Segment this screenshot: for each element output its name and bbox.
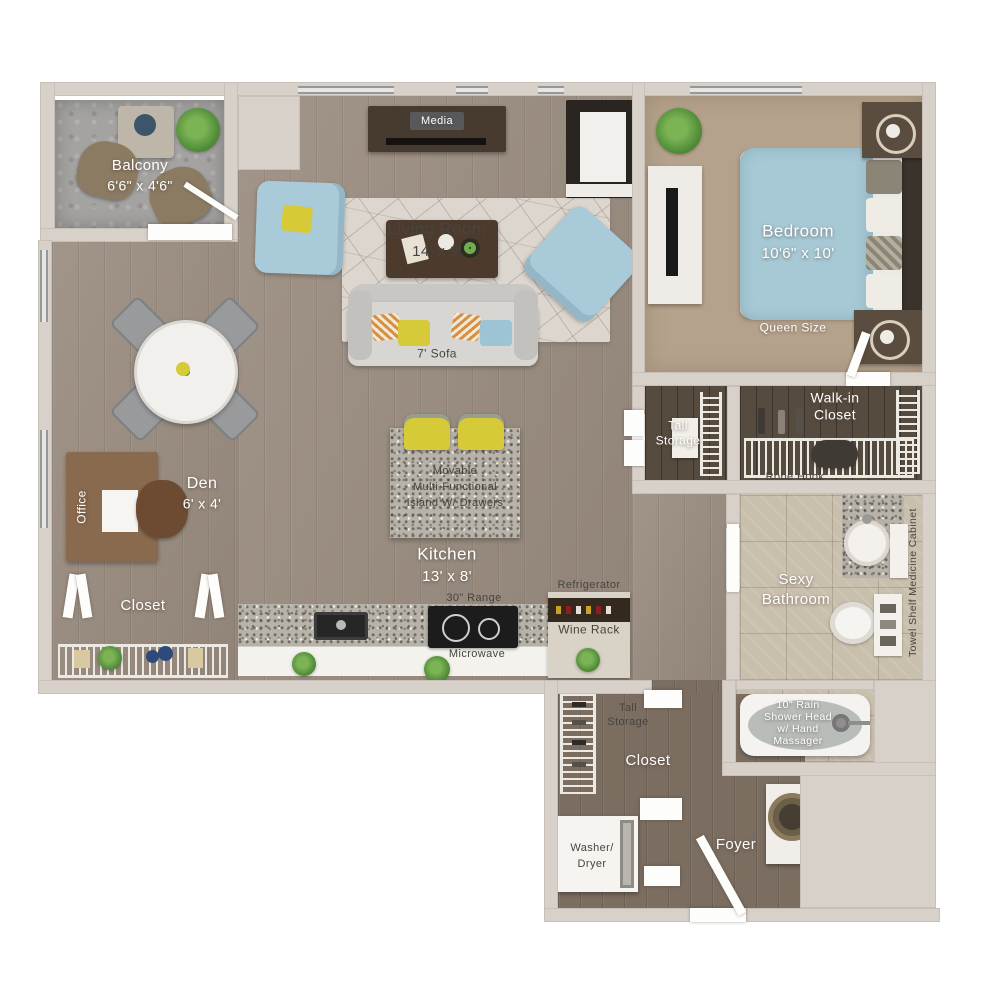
wine-bottle-3 — [576, 606, 581, 614]
wall — [726, 590, 740, 680]
towel-2 — [880, 620, 896, 629]
window — [690, 86, 802, 94]
robe-hook-label: Robe Hook — [766, 471, 825, 483]
left-closet-box-1 — [74, 650, 90, 668]
den-label: Den — [187, 475, 218, 493]
wine-bottle-4 — [586, 606, 591, 614]
bedroom-dims: 10'6" x 10' — [762, 246, 835, 263]
tub-line3: w/ Hand — [777, 724, 818, 736]
balcony-label: Balcony — [112, 158, 168, 175]
towel-shelf-label: Towel Shelf — [908, 599, 920, 657]
bed-pillow-2 — [866, 198, 902, 232]
kitchen-dims: 13' x 8' — [422, 569, 472, 586]
tub-line4: Massager — [773, 736, 822, 748]
wall — [736, 680, 874, 690]
medicine-cabinet-label: Medicine Cabinet — [908, 508, 920, 596]
den-dims: 6' x 4' — [183, 496, 222, 511]
hanging-clothes-1 — [758, 408, 765, 434]
left-closet-plant — [98, 646, 122, 670]
range-label: 30" Range — [446, 592, 501, 604]
sofa-pillow-2 — [398, 320, 430, 346]
kitchen-label: Kitchen — [417, 546, 477, 565]
bedroom-tv — [666, 188, 678, 276]
office-chair — [136, 480, 188, 538]
bottom-closet-panel-1 — [644, 690, 682, 708]
island-line3: Island W/ Drawers — [407, 497, 504, 509]
sofa-label: 7' Sofa — [417, 347, 457, 360]
bathroom-line1: Sexy — [779, 572, 814, 589]
walk-in-closet-line2: Closet — [814, 407, 856, 422]
living-room-dims: 14' x 9' — [412, 244, 462, 261]
island-line1: Movable — [433, 465, 477, 477]
window — [40, 250, 48, 322]
island-chair-2 — [458, 414, 504, 450]
bottom-closet-panel-3 — [644, 866, 680, 886]
balcony-plant — [176, 108, 220, 152]
left-closet-box-2 — [188, 648, 203, 668]
floor-plan: Balcony 6'6" x 4'6" Media Living Room 14… — [0, 0, 1000, 1000]
wall — [40, 82, 55, 242]
sofa-pillow-1 — [371, 313, 402, 342]
wine-bottle-5 — [596, 606, 601, 614]
sofa-arm-right — [514, 290, 538, 360]
wine-bottle-6 — [606, 606, 611, 614]
sofa-pillow-4 — [480, 320, 512, 346]
armchair-left-pillow — [281, 205, 314, 234]
wall — [726, 494, 740, 528]
tall-storage-upper-line2: Storage — [656, 434, 701, 447]
hallway-floor — [632, 494, 726, 680]
refrigerator-label: Refrigerator — [558, 579, 621, 591]
coffee-table-bowl — [460, 238, 480, 258]
towel-3 — [880, 636, 896, 646]
wall — [874, 680, 936, 766]
medicine-cabinet-shelf — [890, 524, 908, 578]
wall — [632, 82, 645, 386]
island-line2: Multi-Functional — [413, 481, 497, 493]
bottom-clothes-1 — [572, 702, 586, 707]
closet-bottom-label: Closet — [626, 753, 671, 770]
nightstand-bottom-lamp-core — [880, 330, 894, 344]
tub-faucet-arm — [848, 721, 870, 725]
window — [40, 430, 48, 528]
nightstand-top-lamp-core — [886, 124, 900, 138]
range-burner-1 — [442, 614, 470, 642]
wine-bottle-2 — [566, 606, 571, 614]
tub-line2: Shower Head — [764, 712, 832, 724]
toilet-bowl — [830, 602, 876, 644]
living-room-label: Living Room — [388, 221, 487, 240]
range-burner-2 — [478, 618, 500, 640]
bottom-closet-basket — [566, 736, 600, 766]
wine-bottle-1 — [556, 606, 561, 614]
sink-faucet — [862, 514, 872, 524]
wall — [632, 372, 936, 386]
microwave-label: Microwave — [449, 648, 505, 660]
window — [298, 86, 394, 94]
office-paper — [102, 490, 138, 532]
kitchen-sink-faucet — [336, 620, 346, 630]
closet-left-label: Closet — [121, 598, 166, 615]
hanging-clothes-3 — [796, 408, 803, 434]
bed-pillow-1 — [866, 160, 902, 194]
bathroom-door-leaf — [727, 524, 739, 592]
washer-line2: Dryer — [578, 858, 607, 870]
bathroom-line2: Bathroom — [762, 592, 830, 609]
bedroom-label: Bedroom — [762, 223, 834, 242]
media-label: Media — [421, 115, 453, 127]
bottom-closet-panel-2 — [640, 798, 682, 820]
walk-in-side-shelf — [896, 390, 920, 474]
wall — [722, 680, 736, 766]
washer-line1: Washer/ — [570, 842, 613, 854]
left-closet-vase-2 — [158, 646, 173, 661]
hanging-clothes-2 — [778, 410, 785, 434]
wall — [238, 96, 300, 170]
wall — [922, 82, 936, 694]
window — [538, 86, 564, 94]
balcony-dims: 6'6" x 4'6" — [107, 178, 173, 193]
window — [456, 86, 488, 94]
washer-dryer-door — [620, 820, 634, 888]
wall — [38, 680, 652, 694]
wall — [722, 762, 936, 776]
counter-plant-3 — [576, 648, 600, 672]
wine-rack-label: Wine Rack — [558, 623, 620, 636]
island-chair-1 — [404, 414, 450, 450]
queen-size-label: Queen Size — [760, 321, 827, 334]
tv-bar — [386, 138, 486, 145]
bed-pillow-3 — [866, 236, 902, 270]
tall-storage-door-2 — [624, 440, 644, 466]
duffel-bag — [812, 440, 858, 468]
wall — [800, 762, 936, 908]
counter-plant-2 — [424, 656, 450, 682]
window-desk-top — [580, 112, 626, 182]
bed-headboard — [900, 148, 924, 320]
walk-in-closet-line1: Walk-in — [811, 390, 860, 405]
bathroom-sink — [844, 520, 890, 566]
bedroom-plant — [656, 108, 702, 154]
balcony-firebowl — [134, 114, 156, 136]
foyer-label: Foyer — [716, 837, 756, 854]
bed-pillow-4 — [866, 274, 902, 308]
bottom-clothes-2 — [572, 720, 586, 725]
sofa-arm-left — [348, 290, 372, 360]
counter-plant-1 — [292, 652, 316, 676]
dining-table-flowers — [176, 362, 190, 376]
window-bench — [566, 184, 640, 197]
tub-line1: 10" Rain — [776, 700, 819, 712]
tall-storage-lower-line2: Storage — [607, 716, 648, 728]
tall-storage-lower-line1: Tall — [619, 702, 637, 714]
towel-1 — [880, 604, 896, 613]
wall — [727, 386, 740, 494]
wall — [544, 680, 558, 922]
tall-storage-door-1 — [624, 410, 644, 436]
office-label: Office — [75, 490, 88, 524]
tall-storage-shelf — [700, 392, 722, 476]
sofa-pillow-3 — [450, 312, 481, 342]
balcony-door — [148, 224, 232, 240]
tall-storage-upper-line1: Tall — [668, 419, 688, 432]
